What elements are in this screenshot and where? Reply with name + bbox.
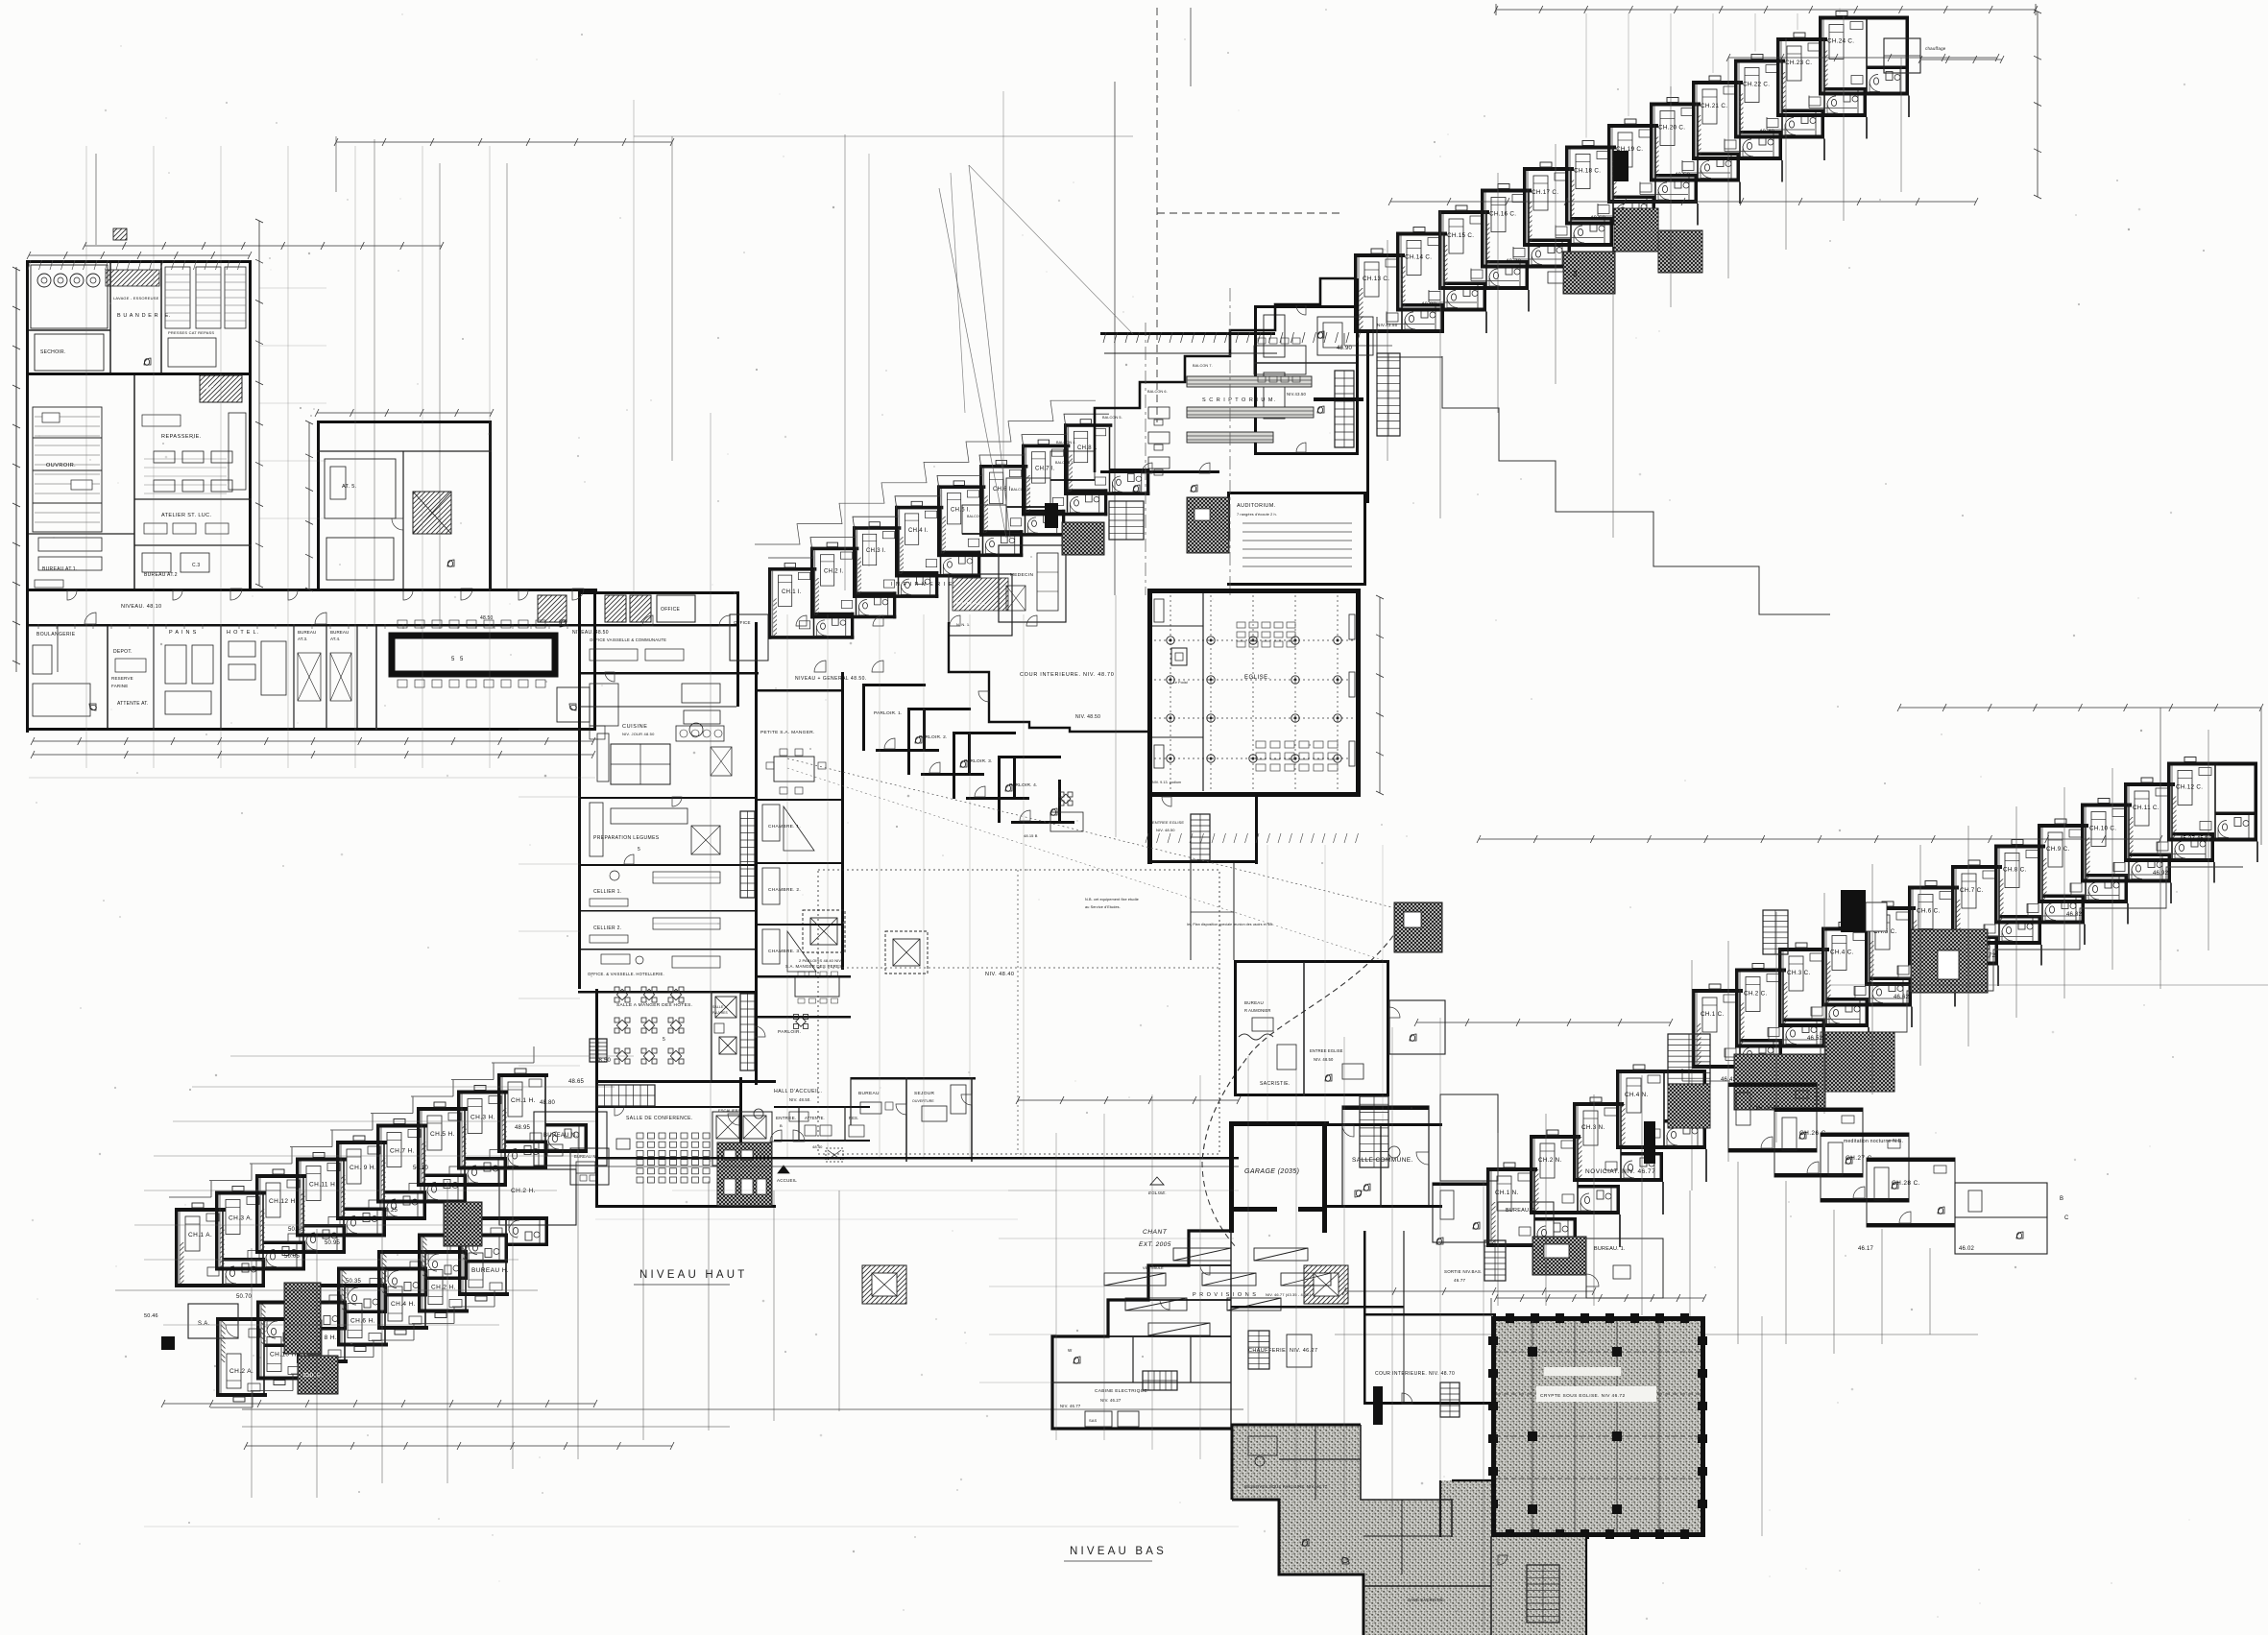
svg-text:SACRISTIE.: SACRISTIE. [1260, 1081, 1291, 1087]
svg-text:50.05: 50.05 [284, 1254, 300, 1260]
svg-text:CELLIER 2.: CELLIER 2. [593, 926, 621, 931]
svg-text:CH.2 I.: CH.2 I. [824, 569, 844, 575]
svg-text:CH.3 A.: CH.3 A. [229, 1215, 253, 1222]
svg-text:NIV. 48.50: NIV. 48.50 [1314, 1057, 1334, 1062]
svg-text:CH.7 H.: CH.7 H. [390, 1148, 415, 1155]
svg-text:CH.4 C.: CH.4 C. [1830, 950, 1854, 956]
svg-text:CH.8 C.: CH.8 C. [2003, 867, 2027, 874]
svg-text:NIVEAU. 48.10: NIVEAU. 48.10 [121, 604, 162, 610]
svg-text:CHAMBRE. 2.: CHAMBRE. 2. [768, 887, 801, 893]
svg-text:ATTENTE.: ATTENTE. [805, 1116, 825, 1120]
svg-text:CH.2 H.: CH.2 H. [431, 1285, 456, 1291]
svg-text:S.A.: S.A. [198, 1321, 210, 1327]
svg-text:chauffage: chauffage [1925, 46, 1946, 51]
svg-text:5: 5 [638, 847, 640, 853]
svg-text:NIV. 46.77: NIV. 46.77 [1060, 1404, 1081, 1408]
svg-text:COUR INTERIEURE. NIV. 48.70: COUR INTERIEURE. NIV. 48.70 [1020, 672, 1114, 678]
svg-text:NIV. 46.77 (43.35 - 4.35.): NIV. 46.77 (43.35 - 4.35.) [1266, 1292, 1312, 1297]
svg-text:NIVEAU + GENERAL 48.50.: NIVEAU + GENERAL 48.50. [795, 676, 867, 682]
svg-text:OFFICE: OFFICE [734, 620, 751, 625]
svg-text:CH.23 C.: CH.23 C. [1785, 60, 1812, 66]
svg-text:Ier, Plan disposition specia: Ier, Plan disposition speciale reunion d… [1187, 923, 1273, 926]
svg-text:CH.1 H.: CH.1 H. [511, 1097, 536, 1104]
svg-text:50.95: 50.95 [325, 1240, 340, 1246]
svg-text:CHANT: CHANT [1143, 1229, 1168, 1236]
svg-text:P A I N S: P A I N S [169, 630, 197, 636]
svg-text:CH.4 H.: CH.4 H. [391, 1301, 416, 1308]
svg-text:AT.4.: AT.4. [330, 637, 340, 641]
svg-text:NIV.43.50: NIV.43.50 [1377, 323, 1398, 327]
svg-text:CH.5 H.: CH.5 H. [430, 1131, 455, 1138]
svg-text:CH.1 I.: CH.1 I. [782, 589, 802, 595]
svg-text:BALCON 2.: BALCON 2. [1011, 488, 1030, 492]
svg-text:BALCON 7.: BALCON 7. [1193, 364, 1213, 368]
svg-text:CH.6 H.: CH.6 H. [350, 1318, 375, 1325]
svg-text:B U A N D E R I E.: B U A N D E R I E. [117, 313, 171, 319]
svg-text:OFFICE VAISSELLE & COMMUNAUTE: OFFICE VAISSELLE & COMMUNAUTE [590, 637, 666, 642]
svg-text:7 rangées d'écoute 2 h.: 7 rangées d'écoute 2 h. [1237, 513, 1277, 517]
svg-text:CH.2 N.: CH.2 N. [1538, 1157, 1562, 1164]
svg-text:BUREAU AT.1.: BUREAU AT.1. [42, 566, 78, 572]
svg-text:48.80: 48.80 [540, 1100, 555, 1106]
svg-text:BALCON 4.: BALCON 4. [1056, 441, 1076, 445]
svg-text:CH.11 C.: CH.11 C. [2133, 805, 2159, 811]
svg-text:CH.20 C.: CH.20 C. [1658, 125, 1685, 132]
svg-text:50.25: 50.25 [382, 1208, 398, 1214]
svg-text:CH.3 H.: CH.3 H. [470, 1115, 495, 1121]
svg-text:B: B [780, 1123, 783, 1128]
svg-text:CH.21 C.: CH.21 C. [1701, 103, 1727, 109]
svg-text:AUDITORIUM.: AUDITORIUM. [1237, 503, 1276, 509]
svg-text:ESCALIERS: ESCALIERS [718, 1108, 741, 1113]
svg-text:S.A. MANGER DES PERES.: S.A. MANGER DES PERES. [785, 964, 844, 969]
svg-text:48.15 B: 48.15 B [1024, 833, 1038, 838]
svg-text:BALCON 3.: BALCON 3. [1055, 461, 1074, 465]
svg-text:CH.1 C.: CH.1 C. [1701, 1011, 1725, 1018]
svg-text:I N F I R M E R I E.: I N F I R M E R I E. [891, 582, 955, 588]
svg-text:BALCON 1.: BALCON 1. [967, 515, 986, 518]
svg-text:PARLOIR. 1.: PARLOIR. 1. [874, 710, 903, 716]
svg-text:WC: WC [205, 386, 214, 392]
svg-text:CRYPTE SOUS EGLISE. NIV 46: CRYPTE SOUS EGLISE. NIV 46.72 [1540, 1393, 1626, 1399]
svg-text:CH.12 H.: CH.12 H. [269, 1198, 298, 1205]
svg-text:C: C [2064, 1215, 2069, 1221]
svg-text:NIV. 48.50: NIV. 48.50 [1156, 828, 1175, 832]
svg-text:CH.6 I.: CH.6 I. [993, 487, 1013, 493]
svg-text:48.80: 48.80 [1421, 302, 1436, 308]
svg-text:CH.4 N.: CH.4 N. [1625, 1092, 1649, 1098]
svg-text:PAUVRES: PAUVRES [712, 1011, 728, 1015]
svg-text:CH. 9 H.: CH. 9 H. [350, 1165, 376, 1171]
svg-text:EXT. 2005: EXT. 2005 [1139, 1241, 1171, 1248]
svg-text:PHARMACIE: PHARMACIE [956, 601, 985, 607]
svg-text:CH.22 C.: CH.22 C. [1743, 82, 1770, 88]
svg-text:OFFICE: OFFICE [661, 607, 680, 613]
svg-text:S C R I P T O R I U M.: S C R I P T O R I U M. [1202, 397, 1276, 403]
svg-text:BOULANGERIE: BOULANGERIE [36, 632, 76, 637]
svg-text:SALLE COMMUNE.: SALLE COMMUNE. [1352, 1157, 1413, 1164]
svg-text:ENTREE.: ENTREE. [776, 1116, 796, 1120]
svg-text:50.35: 50.35 [346, 1279, 361, 1285]
svg-text:BALCON 5.: BALCON 5. [1102, 416, 1122, 420]
svg-text:NIVEAU HAUT: NIVEAU HAUT [639, 1269, 748, 1281]
svg-text:OUVROIR.: OUVROIR. [46, 463, 76, 469]
svg-text:CH.28 C.: CH.28 C. [1892, 1180, 1920, 1187]
svg-text:CUI. E.: CUI. E. [303, 1373, 323, 1379]
svg-text:CH.9 C.: CH.9 C. [2046, 846, 2070, 853]
svg-text:OUVERTURE: OUVERTURE [912, 1099, 934, 1103]
svg-text:NOVICIAT. NIV. 46.77: NOVICIAT. NIV. 46.77 [1585, 1168, 1655, 1175]
svg-text:MEDECIN: MEDECIN [1010, 572, 1033, 578]
svg-text:DEPOT.: DEPOT. [113, 649, 133, 655]
svg-text:NIV.43.50: NIV.43.50 [1287, 392, 1307, 397]
svg-text:CHAMBRE. 3.: CHAMBRE. 3. [768, 949, 801, 954]
svg-text:ENTREE EGLISE: ENTREE EGLISE [1152, 820, 1184, 825]
svg-text:HALL D'ACCUEIL.: HALL D'ACCUEIL. [774, 1089, 822, 1094]
svg-text:meditation nocturne N.B.: meditation nocturne N.B. [1844, 1139, 1903, 1144]
svg-text:CH.2 C.: CH.2 C. [1744, 991, 1768, 998]
svg-text:BUREAU AT.2: BUREAU AT.2 [144, 572, 178, 578]
svg-text:5: 5 [663, 1037, 665, 1043]
svg-text:PARLOIR.: PARLOIR. [778, 1029, 801, 1035]
svg-text:OFFICE. & VAISSELLE. HOTELLERI: OFFICE. & VAISSELLE. HOTELLERIE. [588, 972, 664, 976]
svg-text:CH.17 C.: CH.17 C. [1532, 189, 1558, 196]
svg-text:P R O V I S I O N S: P R O V I S I O N S [1193, 1292, 1257, 1298]
svg-text:50.70: 50.70 [236, 1294, 252, 1300]
svg-text:48.90: 48.90 [1337, 346, 1352, 351]
svg-text:48.95: 48.95 [515, 1125, 530, 1131]
svg-text:5 5: 5 5 [451, 657, 465, 662]
svg-text:46.02: 46.02 [1959, 1246, 1974, 1252]
svg-text:au Service d’Etudes.: au Service d’Etudes. [1085, 905, 1121, 909]
svg-text:CAVE SACRISTIE.: CAVE SACRISTIE. [1408, 1598, 1445, 1602]
svg-text:H O T E L.: H O T E L. [227, 630, 259, 636]
svg-text:CH.5 I.: CH.5 I. [951, 507, 971, 513]
svg-text:CH.15 C.: CH.15 C. [1447, 232, 1474, 239]
svg-text:48.70: 48.70 [1506, 259, 1521, 265]
svg-text:NIVEAU BAS: NIVEAU BAS [1070, 1546, 1167, 1557]
svg-text:PETITE S.A. MANGER.: PETITE S.A. MANGER. [760, 730, 815, 735]
svg-text:R AUMONIER: R AUMONIER [1244, 1008, 1271, 1013]
svg-text:45.27 45.12: 45.27 45.12 [2180, 836, 2212, 842]
svg-text:ATTENTE AT.: ATTENTE AT. [117, 701, 149, 707]
svg-text:SALLE DE CONFERENCE.: SALLE DE CONFERENCE. [626, 1116, 693, 1121]
svg-text:ACCUEIL: ACCUEIL [777, 1178, 797, 1183]
svg-text:FARINE: FARINE [111, 684, 128, 688]
svg-text:CH.16 C.: CH.16 C. [1489, 211, 1516, 218]
svg-text:BUREAU H.: BUREAU H. [471, 1267, 509, 1274]
svg-text:CH.2 H.: CH.2 H. [511, 1188, 536, 1194]
svg-text:SECHOIR.: SECHOIR. [40, 349, 66, 355]
svg-text:48.50: 48.50 [480, 615, 494, 621]
svg-text:NIV. JOUR 48.50: NIV. JOUR 48.50 [622, 732, 655, 736]
svg-text:CH.7 I.: CH.7 I. [1035, 467, 1055, 472]
svg-text:CH.12 C.: CH.12 C. [2176, 784, 2203, 791]
svg-text:CH.4 I.: CH.4 I. [908, 528, 929, 534]
svg-text:BUREAU. 2.: BUREAU. 2. [1506, 1208, 1537, 1214]
svg-text:BUREAU N.: BUREAU N. [543, 1133, 577, 1139]
svg-text:50.40: 50.40 [288, 1227, 303, 1233]
svg-text:CH.14 C.: CH.14 C. [1405, 254, 1432, 261]
svg-text:48.40: 48.40 [1759, 130, 1774, 135]
svg-text:AT.3.: AT.3. [298, 637, 307, 641]
svg-text:BUREAU: BUREAU [330, 630, 349, 635]
svg-text:CH.7 C.: CH.7 C. [1960, 887, 1984, 894]
svg-text:PRESSES CAT REPASS: PRESSES CAT REPASS [168, 330, 214, 335]
svg-text:LAVAGE - ESSOREUSE: LAVAGE - ESSOREUSE [113, 296, 159, 301]
svg-text:SALLE A MANGER DES HOTES.: SALLE A MANGER DES HOTES. [616, 1002, 692, 1008]
svg-text:PARLOIR. 3.: PARLOIR. 3. [964, 758, 993, 764]
svg-text:B: B [2060, 1196, 2063, 1202]
svg-text:VESTIBULE: VESTIBULE [1143, 1266, 1164, 1270]
svg-text:CH.1 N.: CH.1 N. [1495, 1190, 1519, 1196]
svg-text:CH.11 H.: CH.11 H. [309, 1182, 337, 1189]
svg-text:CUISINE: CUISINE [622, 724, 648, 730]
svg-text:2.: 2. [1573, 270, 1580, 278]
svg-text:W: W [1068, 1348, 1073, 1353]
svg-text:GARAGE (2035): GARAGE (2035) [1244, 1168, 1299, 1175]
svg-text:CH.3 N.: CH.3 N. [1581, 1124, 1605, 1131]
svg-text:SEJOUR: SEJOUR [914, 1091, 934, 1096]
svg-text:BUREAU: BUREAU [858, 1091, 880, 1096]
svg-text:BUREAU N.: BUREAU N. [574, 1154, 597, 1159]
svg-text:CH.2 A.: CH.2 A. [229, 1368, 253, 1375]
svg-text:RESERVE: RESERVE [111, 676, 133, 681]
svg-text:AT. 5.: AT. 5. [342, 484, 357, 490]
svg-text:NIV. 48.40: NIV. 48.40 [985, 972, 1014, 977]
svg-text:NIV. 9.13. podium: NIV. 9.13. podium [1152, 781, 1181, 784]
svg-text:NIVEAU. 48.50: NIVEAU. 48.50 [572, 630, 609, 636]
svg-text:NIV. 48.50.: NIV. 48.50. [789, 1097, 811, 1102]
svg-text:NIV. 46.27: NIV. 46.27 [1100, 1398, 1122, 1403]
svg-text:50.46: 50.46 [144, 1313, 158, 1319]
svg-text:ATELIER ST. LUC.: ATELIER ST. LUC. [161, 513, 212, 518]
svg-text:Le Podal: Le Podal [1173, 681, 1188, 685]
svg-text:SORTIE NIV.BAS.: SORTIE NIV.BAS. [1444, 1269, 1483, 1274]
svg-text:RESERVES SOUS PARLOIRS.: RESERVES SOUS PARLOIRS. NIV. 46.77. [1244, 1484, 1329, 1489]
svg-text:NIV. 48.50: NIV. 48.50 [1075, 714, 1100, 720]
svg-text:SALLE: SALLE [712, 1005, 724, 1009]
svg-text:CH.13 C.: CH.13 C. [1363, 276, 1389, 282]
svg-text:SAS: SAS [1089, 1418, 1098, 1423]
svg-text:N.B. cet equipement fixe: N.B. cet equipement fixe etudie [1085, 898, 1139, 902]
svg-text:CABINE ELECTRIQUE: CABINE ELECTRIQUE [1095, 1388, 1147, 1394]
svg-text:COUR INTERIEURE. NIV. 48.70: COUR INTERIEURE. NIV. 48.70 [1375, 1371, 1455, 1377]
svg-text:ENTREE EGLISE: ENTREE EGLISE [1310, 1048, 1343, 1053]
svg-text:BALCON 6.: BALCON 6. [1147, 390, 1168, 394]
svg-text:46.77: 46.77 [1454, 1278, 1466, 1283]
svg-text:CH.24 C.: CH.24 C. [1827, 38, 1854, 45]
svg-text:CELLIER 1.: CELLIER 1. [593, 889, 621, 895]
svg-text:48.40: 48.40 [812, 1144, 823, 1149]
svg-text:CH.3 C.: CH.3 C. [1787, 970, 1811, 976]
svg-text:46.17: 46.17 [1858, 1246, 1873, 1252]
svg-text:BUREAU. 1.: BUREAU. 1. [1594, 1246, 1626, 1252]
svg-text:48.65: 48.65 [568, 1079, 584, 1085]
svg-text:BUREAU: BUREAU [298, 630, 316, 635]
svg-text:C.3: C.3 [192, 563, 200, 568]
svg-text:PARLOIR. 2.: PARLOIR. 2. [919, 734, 948, 740]
svg-text:BUREAU: BUREAU [1244, 1000, 1264, 1005]
svg-text:EGLISE.: EGLISE. [1148, 1190, 1167, 1195]
svg-text:REPASSERIE.: REPASSERIE. [161, 434, 202, 440]
svg-text:48.60: 48.60 [1590, 216, 1605, 222]
svg-text:48.50: 48.50 [1675, 173, 1690, 179]
svg-text:CH.18 C.: CH.18 C. [1574, 168, 1601, 175]
svg-text:CH.1 A.: CH.1 A. [188, 1232, 212, 1238]
svg-text:2 PARLOIRS 48.40 NIV.: 2 PARLOIRS 48.40 NIV. [799, 958, 842, 963]
svg-text:50.10: 50.10 [413, 1166, 428, 1171]
